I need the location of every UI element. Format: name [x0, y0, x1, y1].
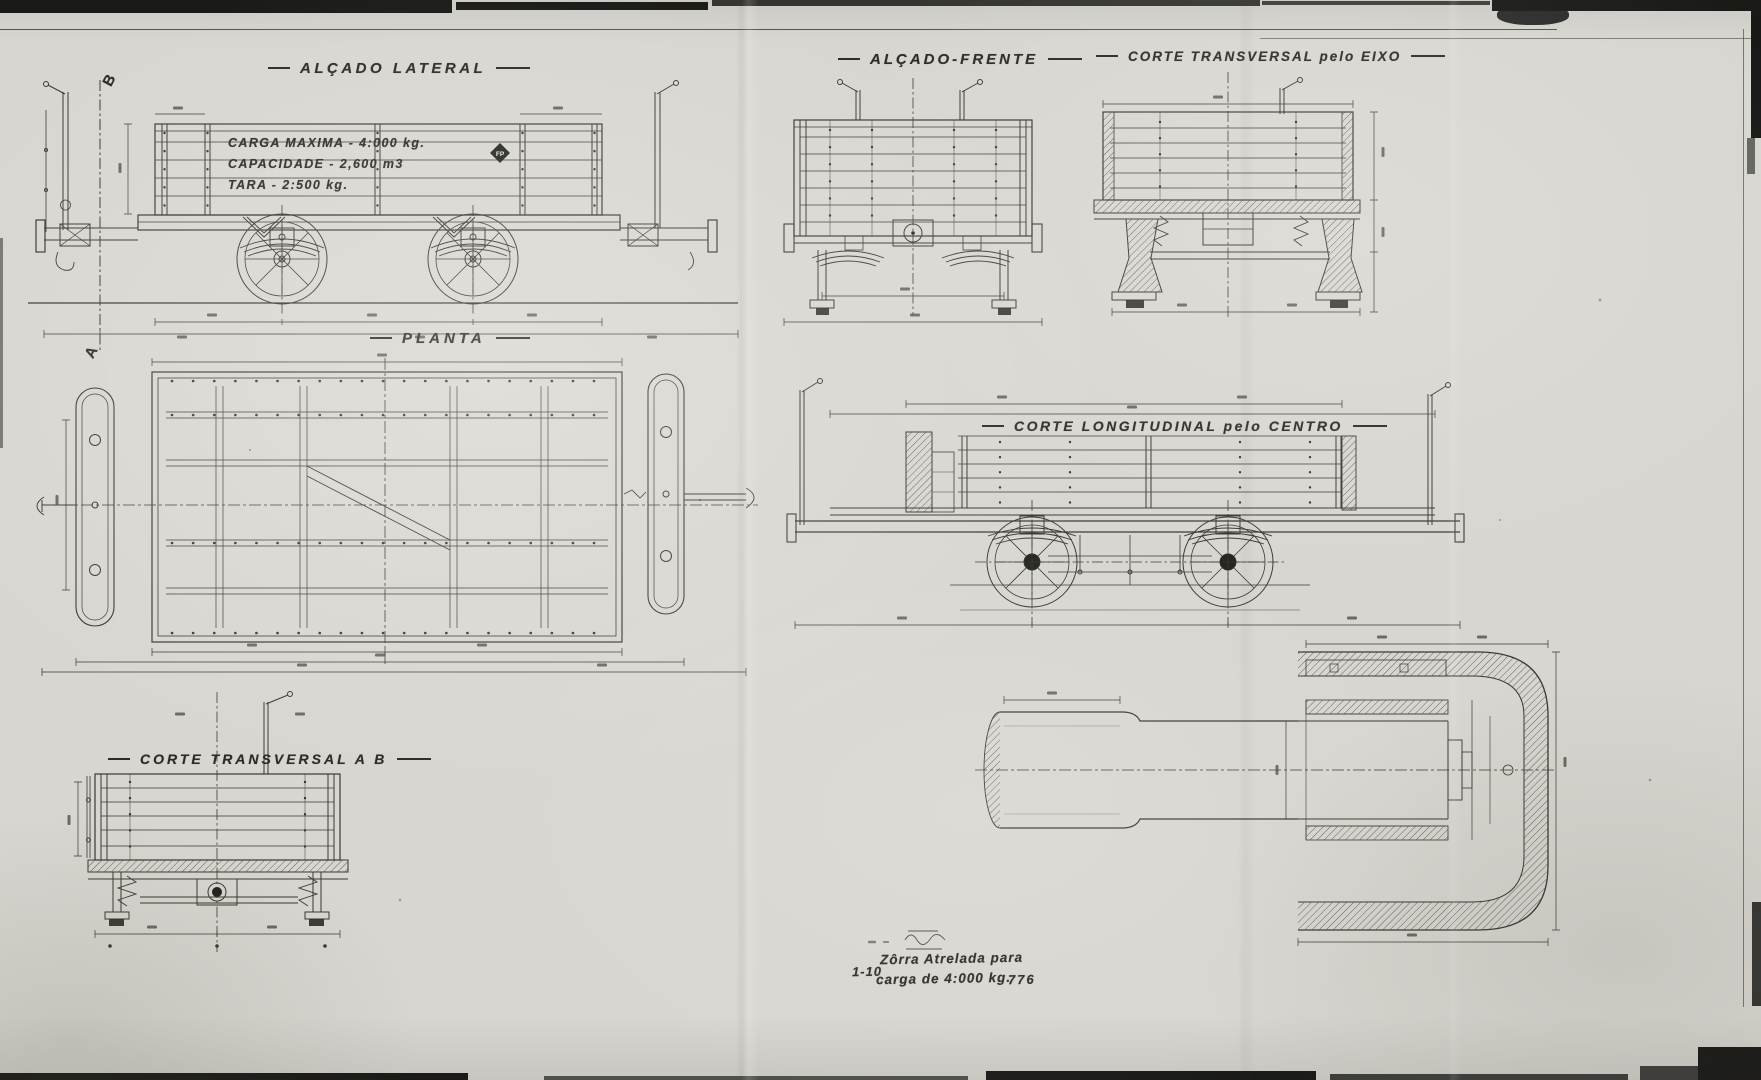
- plan-view-drawing: [37, 354, 758, 677]
- scan-edge-bottom-1: [0, 1073, 468, 1080]
- blueprint-sheet: FP: [0, 0, 1761, 1080]
- sheet-title-line1: Zôrra Atrelada para: [880, 950, 1023, 967]
- scan-edge-top-2: [456, 2, 708, 10]
- title-ab-section: CORTE TRANSVERSAL A B: [108, 751, 431, 767]
- scan-edge-right-1: [1751, 6, 1761, 138]
- scan-edge-right-3: [1752, 902, 1761, 1006]
- title-longitudinal-section-text: CORTE LONGITUDINAL pelo CENTRO: [1014, 418, 1343, 434]
- axle-cross-section-drawing: [1094, 72, 1385, 318]
- sheet-number: 776: [1008, 972, 1036, 987]
- wagon-inscription: CARGA MAXIMA - 4:000 kg. CAPACIDADE - 2,…: [228, 133, 425, 196]
- title-longitudinal-section: CORTE LONGITUDINAL pelo CENTRO: [982, 418, 1387, 434]
- scan-edge-right-2: [1747, 138, 1755, 174]
- title-ab-section-text: CORTE TRANSVERSAL A B: [140, 751, 387, 767]
- title-axle-section-text: CORTE TRANSVERSAL pelo EIXO: [1128, 49, 1401, 64]
- front-elevation-drawing: [784, 78, 1042, 326]
- scan-edge-left-1: [0, 238, 3, 448]
- scan-edge-bottom-2: [544, 1076, 968, 1080]
- title-side-elevation: ALÇADO LATERAL: [268, 60, 530, 77]
- title-front-elevation: ALÇADO-FRENTE: [838, 51, 1082, 68]
- sheet-title-line2: carga de 4:000 kg.: [876, 970, 1011, 987]
- title-axle-section: CORTE TRANSVERSAL pelo EIXO: [1096, 49, 1445, 64]
- scan-edge-top-4: [1262, 1, 1490, 5]
- scan-edge-top-blob: [1497, 5, 1569, 25]
- scan-edge-top-1: [0, 0, 452, 13]
- inscription-carga: CARGA MAXIMA - 4:000 kg.: [228, 133, 425, 154]
- title-side-elevation-text: ALÇADO LATERAL: [300, 60, 486, 77]
- axle-journal-detail-drawing: [975, 636, 1567, 947]
- scan-edge-bottom-3: [986, 1071, 1316, 1080]
- scan-edge-bottom-4: [1330, 1074, 1628, 1080]
- side-elevation-drawing: FP: [28, 80, 738, 352]
- scan-edge-br-2: [1640, 1066, 1761, 1080]
- fp-logo-text: FP: [496, 151, 505, 158]
- title-plan: PLANTA: [370, 330, 530, 347]
- signature-scribble: [868, 931, 945, 949]
- ab-cross-section-drawing: [68, 692, 349, 953]
- inscription-tara: TARA - 2:500 kg.: [228, 175, 425, 196]
- title-plan-text: PLANTA: [402, 330, 486, 347]
- title-front-elevation-text: ALÇADO-FRENTE: [870, 51, 1038, 68]
- longitudinal-section-drawing: [787, 379, 1464, 630]
- scan-edge-top-3: [712, 0, 1260, 6]
- inscription-capacidade: CAPACIDADE - 2,600 m3: [228, 154, 425, 175]
